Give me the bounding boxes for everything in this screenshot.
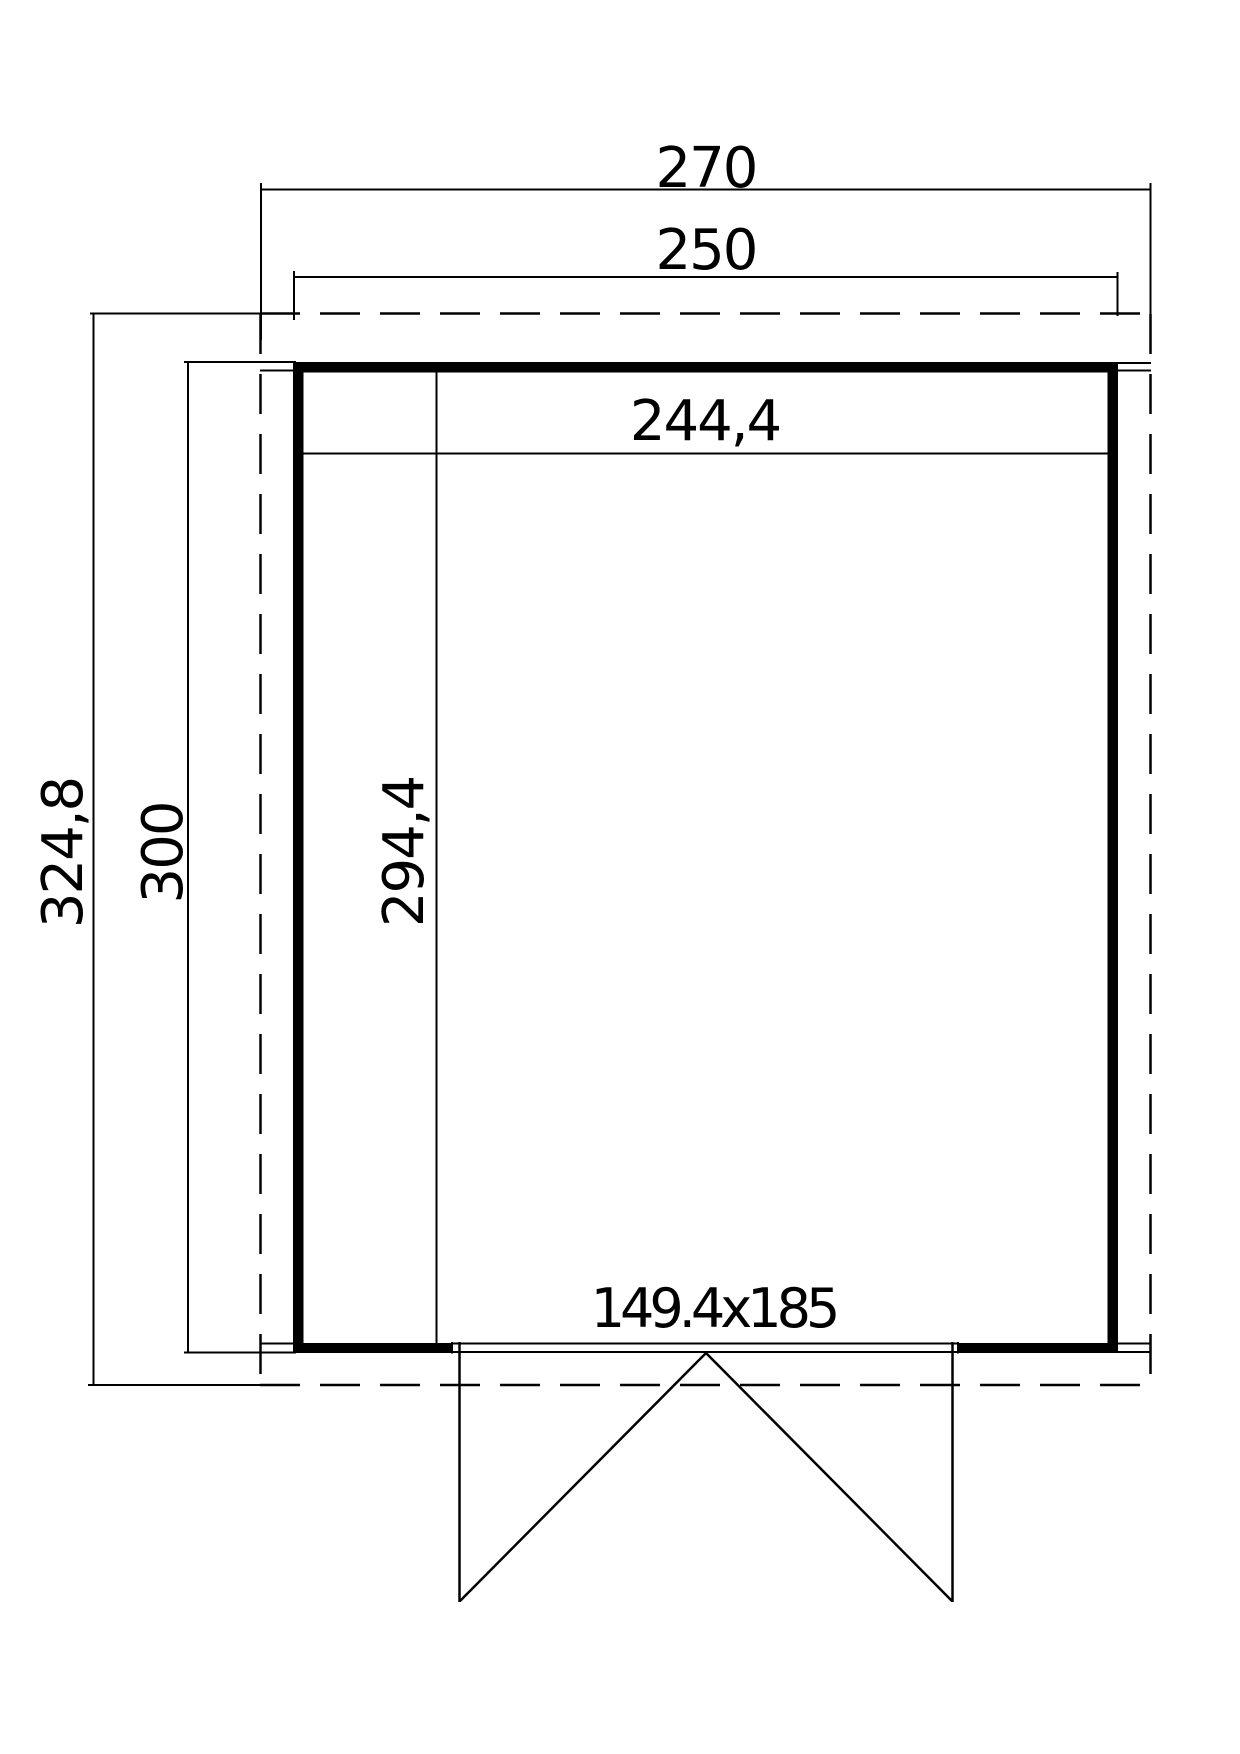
drawing-page: 270 250 244,4 324,8 300 294,4 149.4x185 (0, 0, 1240, 1754)
label-roof-width: 270 (656, 136, 757, 201)
wall-right (1108, 362, 1119, 1353)
door-swing-right (706, 1353, 952, 1601)
label-base-width: 250 (656, 218, 757, 283)
wall-bottom-left-of-door (293, 1343, 452, 1353)
wall-top (293, 362, 1118, 373)
label-roof-depth: 324,8 (31, 778, 96, 928)
wall-bottom-right-of-door (958, 1343, 1118, 1353)
floor-plan-svg: 270 250 244,4 324,8 300 294,4 149.4x185 (0, 0, 1240, 1754)
label-base-depth: 300 (131, 803, 196, 904)
label-interior-width: 244,4 (630, 389, 780, 454)
dim-base-depth (184, 362, 296, 1353)
label-interior-depth: 294,4 (372, 777, 437, 927)
label-door-size: 149.4x185 (591, 1277, 836, 1340)
door-swing-left (460, 1353, 706, 1601)
door (452, 1342, 959, 1602)
wall-left (293, 362, 304, 1353)
